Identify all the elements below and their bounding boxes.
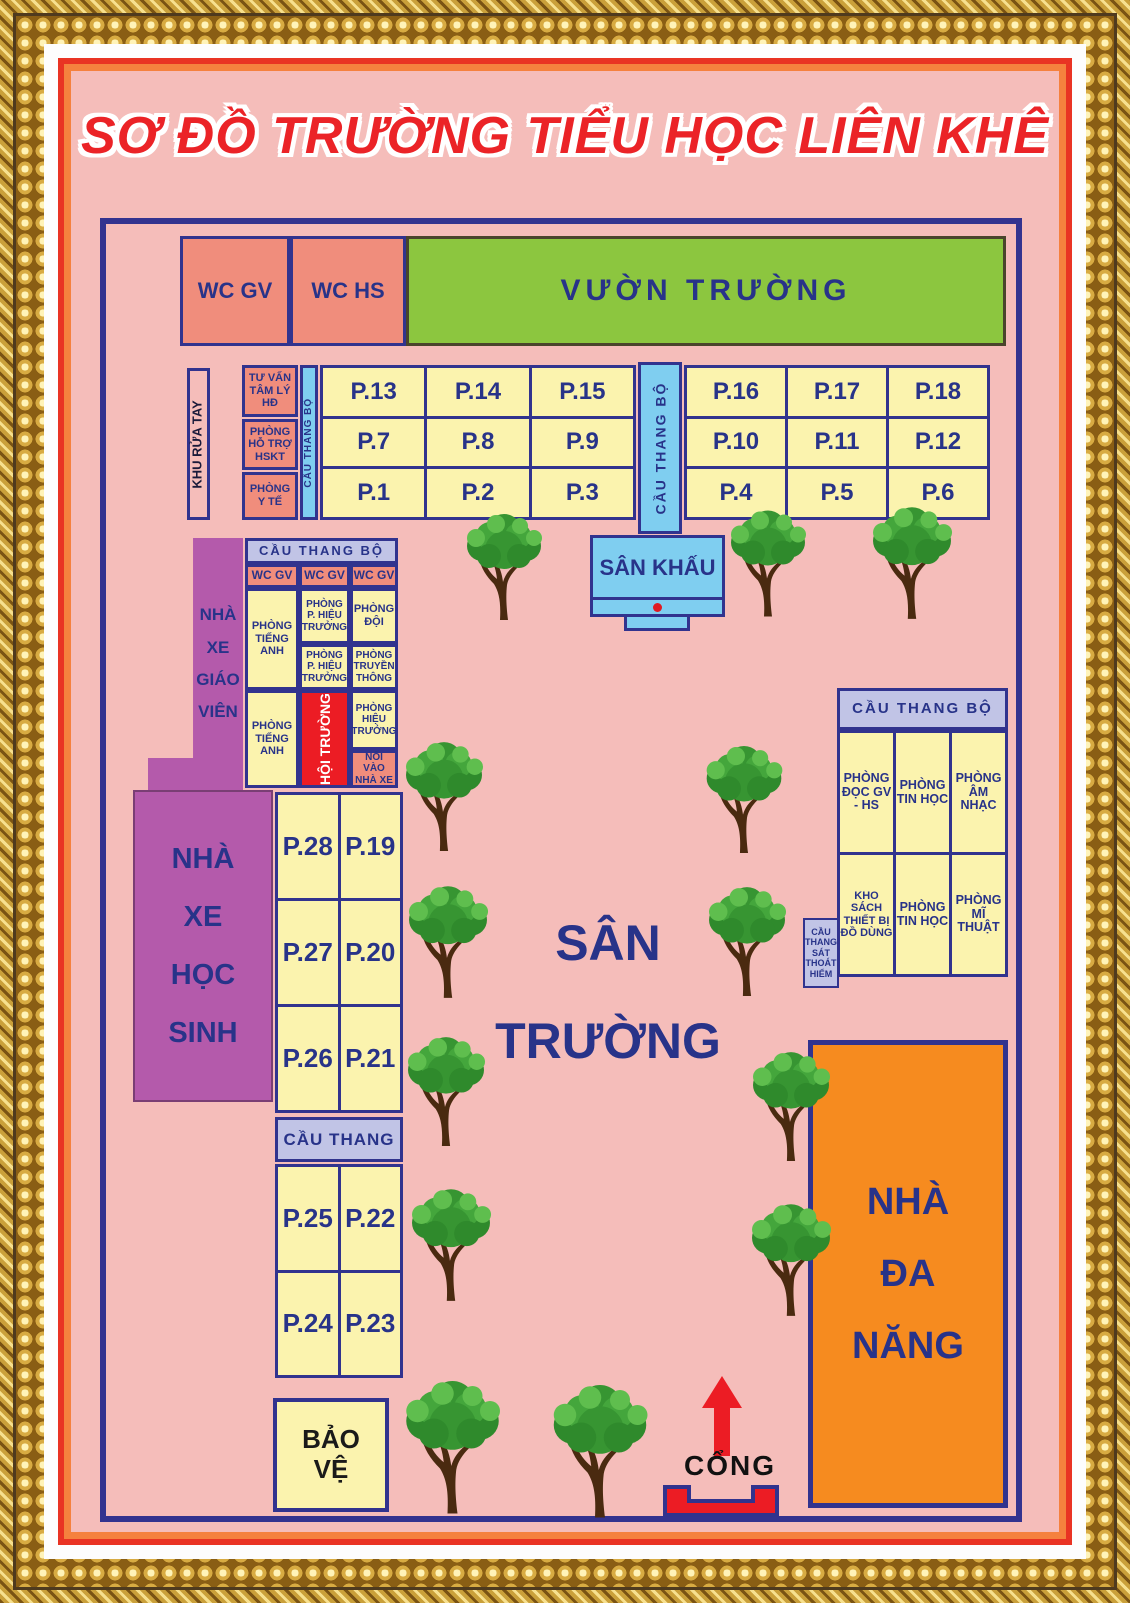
room-vice-principal-2: PHÒNG P. HIỆU TRƯỞNG xyxy=(299,644,350,690)
room-english-2: PHÒNG TIẾNG ANH xyxy=(245,690,299,788)
stairs-fire-escape: CẦU THANG SÁT THOÁT HIỂM xyxy=(803,918,839,988)
stairs-west-column: CẦU THANG xyxy=(275,1117,403,1162)
room-cell: P.6 xyxy=(889,469,987,517)
room-label: WC HS xyxy=(311,278,384,303)
room-cell: P.7 xyxy=(323,419,424,467)
room-cell: P.4 xyxy=(687,469,785,517)
area-garden: VƯỜN TRƯỜNG xyxy=(406,236,1006,346)
parking-teachers-label: NHÀ XE GIÁO VIÊN xyxy=(193,538,243,790)
room-cell: P.24 xyxy=(278,1273,338,1376)
gate-label: CỔNG xyxy=(660,1450,800,1482)
framed-school-map-poster: SƠ ĐỒ TRƯỜNG TIỂU HỌC LIÊN KHÊ WC GV WC … xyxy=(0,0,1130,1603)
room-label: WC GV xyxy=(198,278,273,303)
room-cell: P.1 xyxy=(323,469,424,517)
guard-house: BẢO VỆ xyxy=(273,1398,389,1512)
classroom-grid-north-east: P.16 P.17 P.18 P.10 P.11 P.12 P.4 P.5 P.… xyxy=(684,365,990,520)
room-cell: P.17 xyxy=(788,368,886,416)
room-label: PHÒNG P. HIỆU TRƯỞNG xyxy=(302,599,347,634)
room-label: PHÒNG TIẾNG ANH xyxy=(248,620,296,658)
room-label: PHÒNG ĐỘI xyxy=(353,603,395,628)
room-cell: P.21 xyxy=(341,1007,401,1110)
area-label: VƯỜN TRƯỜNG xyxy=(561,274,852,309)
passage-label: NỐI VÀO NHÀ XE xyxy=(353,752,395,787)
room-support-hskt: PHÒNG HỖ TRỢ HSKT xyxy=(242,419,298,470)
room-label: PHÒNG P. HIỆU TRƯỞNG xyxy=(302,650,347,685)
stairs-label: CẦU THANG xyxy=(284,1130,395,1150)
room-cell: P.8 xyxy=(427,419,528,467)
gate-arrow-head xyxy=(702,1376,742,1408)
room-cell: P.12 xyxy=(889,419,987,467)
room-label: WC GV xyxy=(304,569,345,583)
schoolyard-label: SÂN TRƯỜNG xyxy=(468,895,748,1090)
room-cell: P.20 xyxy=(341,901,401,1004)
stairs-admin-header: CẦU THANG BỘ xyxy=(245,538,398,564)
room-label: TƯ VẤN TÂM LÝ HĐ xyxy=(245,372,295,410)
room-music: PHÒNG ÂM NHẠC xyxy=(952,733,1005,852)
stairs-center: CẦU THANG BỘ xyxy=(638,362,682,534)
stage-marker-dot xyxy=(653,603,662,612)
stage-step xyxy=(624,614,690,631)
stairs-label: CẦU THANG SÁT THOÁT HIỂM xyxy=(805,927,837,979)
room-wc-hs-north: WC HS xyxy=(290,236,406,346)
room-cell: P.3 xyxy=(532,469,633,517)
room-cell: P.15 xyxy=(532,368,633,416)
room-label: WC GV xyxy=(354,569,395,583)
room-computer-2: PHÒNG TIN HỌC xyxy=(896,855,949,974)
room-label: WC GV xyxy=(252,569,293,583)
stairs-east-header: CẦU THANG BỘ xyxy=(837,688,1008,730)
room-principal: PHÒNG HIỆU TRƯỞNG xyxy=(350,690,398,750)
room-cell: P.9 xyxy=(532,419,633,467)
multi-purpose-hall: NHÀ ĐA NĂNG xyxy=(808,1040,1008,1508)
multi-purpose-hall-label: NHÀ ĐA NĂNG xyxy=(813,1166,1003,1383)
room-counselling: TƯ VẤN TÂM LÝ HĐ xyxy=(242,365,298,417)
room-cell: P.26 xyxy=(278,1007,338,1110)
stage-label-area: SÂN KHẤU xyxy=(599,538,715,597)
room-cell: P.25 xyxy=(278,1167,338,1270)
stairs-west: CẦU THANG BỘ xyxy=(300,365,318,520)
room-art: PHÒNG MĨ THUẬT xyxy=(952,855,1005,974)
area-label: KHU RỬA TAY xyxy=(191,400,206,488)
room-cell: P.2 xyxy=(427,469,528,517)
guard-label: BẢO VỆ xyxy=(277,1425,385,1485)
room-storage: KHO SÁCH THIẾT BỊ ĐỒ DÙNG xyxy=(840,855,893,974)
stairs-label: CẦU THANG BỘ xyxy=(303,398,315,488)
room-cell: P.23 xyxy=(341,1273,401,1376)
room-label: PHÒNG TIẾNG ANH xyxy=(248,720,296,758)
room-cell: P.28 xyxy=(278,795,338,898)
room-cell: P.11 xyxy=(788,419,886,467)
room-label: HỘI TRƯỜNG xyxy=(316,693,332,785)
gate-arrow-icon xyxy=(702,1376,742,1456)
room-cell: P.5 xyxy=(788,469,886,517)
room-cell: P.27 xyxy=(278,901,338,1004)
room-computer-1: PHÒNG TIN HỌC xyxy=(896,733,949,852)
room-cell: P.19 xyxy=(341,795,401,898)
room-english-1: PHÒNG TIẾNG ANH xyxy=(245,588,299,690)
room-label: PHÒNG Y TẾ xyxy=(245,483,295,508)
room-cell: P.16 xyxy=(687,368,785,416)
room-label: PHÒNG TRUYỀN THÔNG xyxy=(353,650,395,685)
room-medical: PHÒNG Y TẾ xyxy=(242,472,298,520)
room-wc-gv-3: WC GV xyxy=(350,564,398,588)
page-title: SƠ ĐỒ TRƯỜNG TIỂU HỌC LIÊN KHÊ xyxy=(90,86,1040,186)
room-assembly-hall: HỘI TRƯỜNG xyxy=(299,690,350,788)
area-wash-zone: KHU RỬA TAY xyxy=(187,368,210,520)
passage-to-parking: NỐI VÀO NHÀ XE xyxy=(350,750,398,788)
room-label: PHÒNG HIỆU TRƯỞNG xyxy=(351,703,396,738)
room-vice-principal-1: PHÒNG P. HIỆU TRƯỞNG xyxy=(299,588,350,644)
room-wc-gv-1: WC GV xyxy=(245,564,299,588)
parking-students-label: NHÀ XE HỌC SINH xyxy=(135,830,271,1062)
stairs-label: CẦU THANG BỘ xyxy=(652,382,668,515)
room-youth-team: PHÒNG ĐỘI xyxy=(350,588,398,644)
special-rooms-grid-east: PHÒNG ĐỌC GV - HS PHÒNG TIN HỌC PHÒNG ÂM… xyxy=(837,730,1008,977)
room-wc-gv-2: WC GV xyxy=(299,564,350,588)
room-cell: P.14 xyxy=(427,368,528,416)
gate-icon xyxy=(662,1484,780,1518)
gate-arrow-shaft xyxy=(714,1408,730,1456)
room-cell: P.10 xyxy=(687,419,785,467)
room-cell: P.13 xyxy=(323,368,424,416)
stage-front-band xyxy=(593,597,722,614)
room-reading: PHÒNG ĐỌC GV - HS xyxy=(840,733,893,852)
stage-label: SÂN KHẤU xyxy=(599,555,715,580)
parking-students: NHÀ XE HỌC SINH xyxy=(133,790,273,1102)
classroom-grid-west-upper: P.28 P.19 P.27 P.20 P.26 P.21 xyxy=(275,792,403,1113)
stairs-label: CẦU THANG BỘ xyxy=(259,544,384,559)
room-wc-gv-north: WC GV xyxy=(180,236,290,346)
room-cell: P.18 xyxy=(889,368,987,416)
room-cell: P.22 xyxy=(341,1167,401,1270)
stage: SÂN KHẤU xyxy=(590,535,725,617)
classroom-grid-north-west: P.13 P.14 P.15 P.7 P.8 P.9 P.1 P.2 P.3 xyxy=(320,365,636,520)
room-label: PHÒNG HỖ TRỢ HSKT xyxy=(245,426,295,464)
classroom-grid-west-lower: P.25 P.22 P.24 P.23 xyxy=(275,1164,403,1378)
stairs-label: CẦU THANG BỘ xyxy=(852,700,993,717)
room-media: PHÒNG TRUYỀN THÔNG xyxy=(350,644,398,690)
